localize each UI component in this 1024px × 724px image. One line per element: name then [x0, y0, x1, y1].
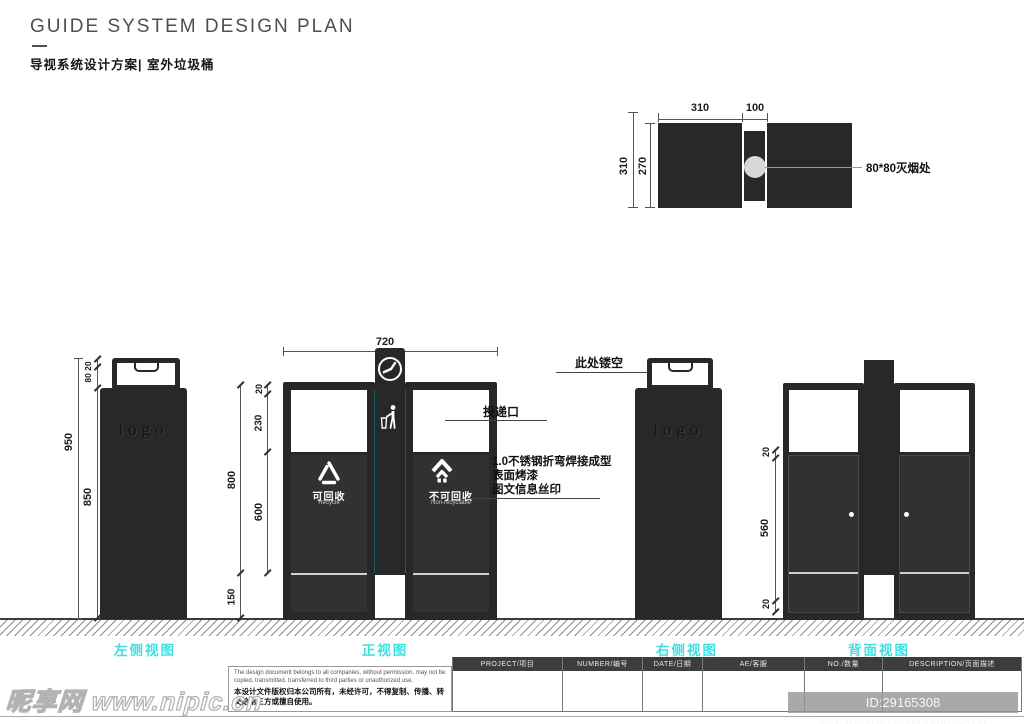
dim-line-600 [267, 385, 268, 573]
non-recyclable-icon [427, 456, 457, 486]
dim-560: 560 [759, 519, 771, 537]
view-label-front: 正视图 [320, 639, 450, 659]
back-right-door-seam [900, 572, 969, 574]
edge-highlight [374, 390, 375, 573]
back-right-window [900, 390, 969, 452]
dim-230: 230 [254, 415, 265, 432]
dim-100-width: 100 [746, 102, 764, 114]
view-label-back: 背面视图 [814, 639, 944, 659]
dim-950: 950 [63, 433, 75, 451]
logo-text: logo [100, 420, 187, 440]
dim-line-560 [775, 450, 776, 612]
dim-150: 150 [227, 589, 238, 606]
door-lock-dot [904, 512, 909, 517]
ashtray-note: 80*80灭烟处 [866, 160, 931, 176]
front-left-panel-seam [291, 573, 367, 575]
dim-270-height: 270 [637, 157, 649, 175]
back-right-door [900, 456, 969, 612]
non-recyclable-label-en: Non-recyclable [413, 500, 489, 506]
top-view-width-dim-line [658, 119, 767, 120]
dim-720: 720 [376, 336, 394, 348]
note-hollow: 此处镂空 [575, 354, 623, 371]
ashtray-circle [744, 156, 766, 178]
logo-text: logo [635, 420, 722, 440]
cigarette-disposal-icon [378, 357, 402, 381]
front-center-column [375, 348, 405, 575]
top-view-outer-height-dim-line [633, 112, 634, 208]
table-col-date: DATE/日期 [643, 657, 703, 711]
table-header: DATE/日期 [643, 657, 702, 671]
dim-tick [742, 113, 743, 122]
dim-tick [74, 358, 83, 359]
dim-80-20: 80 20 [83, 361, 93, 382]
dim-tick [628, 112, 638, 113]
note-material: 1.0不锈钢折弯焊接成型 表面烤漆 图文信息丝印 [492, 455, 612, 497]
top-view-left-block [658, 123, 742, 208]
front-right-panel-seam [413, 573, 489, 575]
table-header: NUMBER/编号 [563, 657, 642, 671]
dim-20: 20 [254, 384, 264, 394]
dim-line-850 [97, 358, 98, 619]
dim-line-950 [78, 358, 79, 619]
ground-hatch [0, 620, 1024, 636]
dim-850: 850 [82, 488, 94, 506]
top-view-inner-height-dim-line [650, 123, 651, 208]
dim-line-800 [240, 385, 241, 619]
back-left-door [789, 456, 858, 612]
table-header: NO./数量 [805, 657, 882, 671]
design-sheet: GUIDE SYSTEM DESIGN PLAN 导视系统设计方案| 室外垃圾桶… [0, 0, 1024, 724]
dim-tick [264, 569, 271, 576]
note-material-line2: 表面烤漆 [492, 469, 612, 483]
dim-600: 600 [253, 503, 265, 521]
table-cell [563, 671, 642, 711]
dim-tick [645, 207, 655, 208]
note-material-line3: 图文信息丝印 [492, 483, 612, 497]
recycle-icon [314, 458, 344, 488]
dim-20-top: 20 [761, 447, 771, 457]
disclaimer-cn: 本设计文件版权归本公司所有，未经许可，不得复制、传播、转交给第三方或擅自使用。 [234, 687, 446, 707]
front-right-window [413, 390, 489, 452]
page-title: GUIDE SYSTEM DESIGN PLAN [30, 16, 355, 38]
front-left-window [291, 390, 367, 452]
recycle-label-en: Recycle [291, 500, 367, 506]
table-col-number: NUMBER/编号 [563, 657, 643, 711]
view-label-right: 右侧视图 [622, 639, 752, 659]
ashtray-leader-line [765, 167, 862, 168]
note-material-line1: 1.0不锈钢折弯焊接成型 [492, 455, 612, 469]
dim-tick [772, 608, 779, 615]
view-label-left: 左侧视图 [80, 639, 210, 659]
dim-tick [658, 113, 659, 122]
note-material-leader [466, 498, 600, 499]
edge-highlight [405, 390, 406, 573]
dim-tick [645, 123, 655, 124]
back-left-door-seam [789, 572, 858, 574]
dim-310-height: 310 [618, 157, 630, 175]
dim-20-bottom: 20 [761, 599, 771, 609]
table-cell [643, 671, 702, 711]
note-slot: 投递口 [483, 403, 519, 420]
back-left-window [789, 390, 858, 452]
tidyman-icon [379, 404, 401, 432]
back-center-column [864, 360, 894, 575]
table-header: DESCRIPTION/页面描述 [883, 657, 1021, 671]
image-id-badge: ID:29165308 NO:20230614093336628109 [788, 692, 1018, 713]
table-header: PROJECT/项目 [453, 657, 562, 671]
handle-notch [668, 363, 693, 372]
dim-tick [283, 347, 284, 356]
bin-body: logo [635, 388, 722, 619]
dim-tick [628, 207, 638, 208]
table-col-project: PROJECT/项目 [452, 657, 563, 711]
table-header: AE/客服 [703, 657, 804, 671]
table-cell [453, 671, 562, 711]
dim-tick [74, 618, 83, 619]
dim-tick [497, 347, 498, 356]
site-watermark: 昵享网 www.nipic.cn [5, 682, 264, 718]
dim-310-width: 310 [691, 102, 709, 114]
page-subtitle: 导视系统设计方案| 室外垃圾桶 [30, 54, 214, 73]
top-view-right-block [767, 123, 852, 208]
dim-800: 800 [226, 471, 238, 489]
dim-tick [767, 113, 768, 122]
disclaimer-en: The design document belongs to all compa… [234, 670, 446, 685]
door-lock-dot [849, 512, 854, 517]
note-slot-leader [445, 420, 547, 421]
bin-body: logo [100, 388, 187, 619]
handle-notch [134, 363, 159, 372]
title-underline [32, 45, 47, 47]
